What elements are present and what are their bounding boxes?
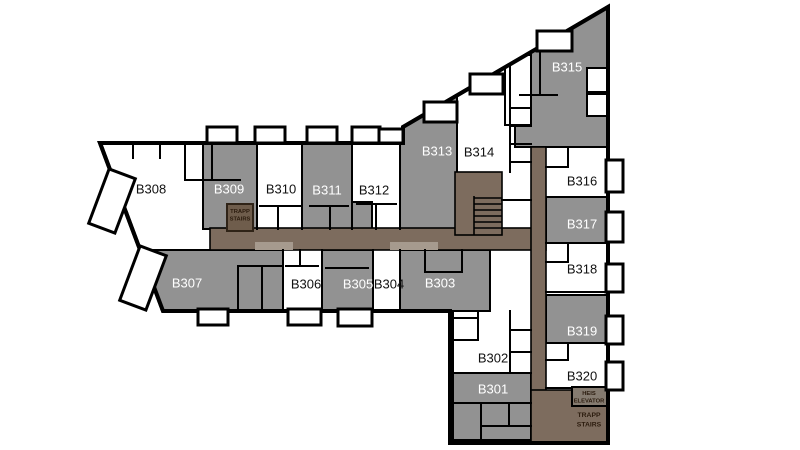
unit-label-b315: B315 — [552, 60, 582, 75]
unit-label-b314: B314 — [464, 145, 494, 160]
unit-label-b302: B302 — [478, 351, 508, 366]
unit-label-b313: B313 — [422, 144, 452, 159]
unit-label-b311: B311 — [312, 183, 341, 198]
unit-label-b301: B301 — [478, 382, 508, 397]
service-label-trapp-stairs-south-line-2: STAIRS — [577, 422, 602, 429]
corridor-light-patch-1 — [255, 242, 293, 250]
b311-annex — [352, 202, 372, 229]
balcony-4 — [352, 127, 380, 143]
unit-label-b320: B320 — [567, 369, 597, 384]
unit-label-b316: B316 — [567, 174, 597, 189]
balcony-10 — [606, 212, 623, 242]
balcony-14 — [198, 309, 228, 325]
balcony-1 — [207, 127, 237, 143]
balcony-13 — [606, 362, 623, 390]
service-label-trapp-stairs-west-line-1: TRAPP — [230, 209, 250, 215]
unit-label-b318: B318 — [567, 262, 597, 277]
balcony-12 — [606, 316, 623, 344]
service-label-trapp-stairs-west: TRAPPSTAIRS — [230, 209, 251, 223]
unit-label-b309: B309 — [214, 182, 244, 197]
unit-label-b306: B306 — [291, 277, 321, 292]
rooms-below-b301 — [453, 403, 531, 440]
b315-room-2 — [587, 94, 607, 116]
balcony-8 — [537, 31, 572, 51]
balcony-6 — [424, 102, 457, 122]
unit-label-b310: B310 — [266, 182, 296, 197]
floor-plan: B301B302B303B304B305B306B307B308B309B310… — [0, 0, 800, 450]
unit-label-b305: B305 — [343, 277, 373, 292]
service-label-trapp-stairs-west-line-2: STAIRS — [230, 217, 251, 223]
balcony-3 — [307, 127, 337, 143]
building-interior — [133, 0, 608, 443]
balcony-9 — [606, 160, 623, 192]
unit-label-b317: B317 — [567, 217, 597, 232]
balcony-7 — [470, 74, 503, 94]
balcony-5 — [379, 129, 403, 143]
balcony-16 — [338, 309, 372, 326]
service-label-trapp-stairs-south-line-1: TRAPP — [577, 412, 601, 419]
balcony-11 — [606, 264, 623, 292]
balcony-15 — [288, 309, 321, 325]
service-label-heis-elevator-line-2: ELEVATOR — [574, 399, 605, 405]
balcony-2 — [255, 127, 285, 143]
service-label-heis-elevator-line-1: HEIS — [582, 391, 596, 397]
unit-label-b304: B304 — [374, 277, 404, 292]
b315-room-1 — [587, 68, 607, 92]
unit-label-b319: B319 — [567, 324, 597, 339]
unit-label-b312: B312 — [359, 183, 389, 198]
corridor-light-patch-2 — [390, 242, 438, 250]
unit-label-b307: B307 — [172, 276, 202, 291]
unit-label-b303: B303 — [425, 276, 455, 291]
unit-label-b308: B308 — [136, 182, 166, 197]
floor-plan-svg: B301B302B303B304B305B306B307B308B309B310… — [0, 0, 800, 450]
